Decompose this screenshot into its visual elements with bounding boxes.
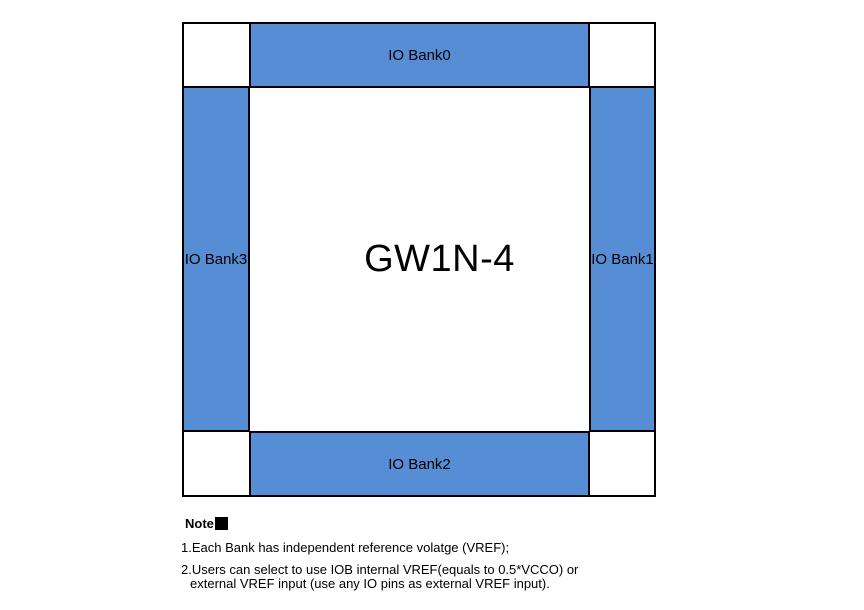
io-bank1-label: IO Bank1	[591, 252, 654, 267]
io-bank3-label: IO Bank3	[185, 252, 248, 267]
chip-title-text: GW1N-4	[364, 238, 515, 281]
note-item-1: 1.Each Bank has independent reference vo…	[181, 541, 509, 554]
note-item-2: 2.Users can select to use IOB internal V…	[181, 563, 578, 576]
io-bank2-bar: IO Bank2	[249, 431, 590, 497]
io-bank0-bar: IO Bank0	[249, 22, 590, 88]
chip-title: GW1N-4	[250, 88, 589, 431]
notes-heading-text: Note	[185, 516, 214, 531]
io-bank2-label: IO Bank2	[388, 457, 451, 472]
notes-heading: Note	[185, 516, 228, 531]
io-bank0-label: IO Bank0	[388, 48, 451, 63]
note-item-2-continued: external VREF input (use any IO pins as …	[190, 577, 550, 590]
io-bank3-bar: IO Bank3	[182, 86, 250, 432]
io-bank1-bar: IO Bank1	[589, 86, 656, 432]
missing-glyph-box	[215, 517, 228, 530]
page: IO Bank0 IO Bank3 IO Bank1 IO Bank2 GW1N…	[0, 0, 864, 610]
